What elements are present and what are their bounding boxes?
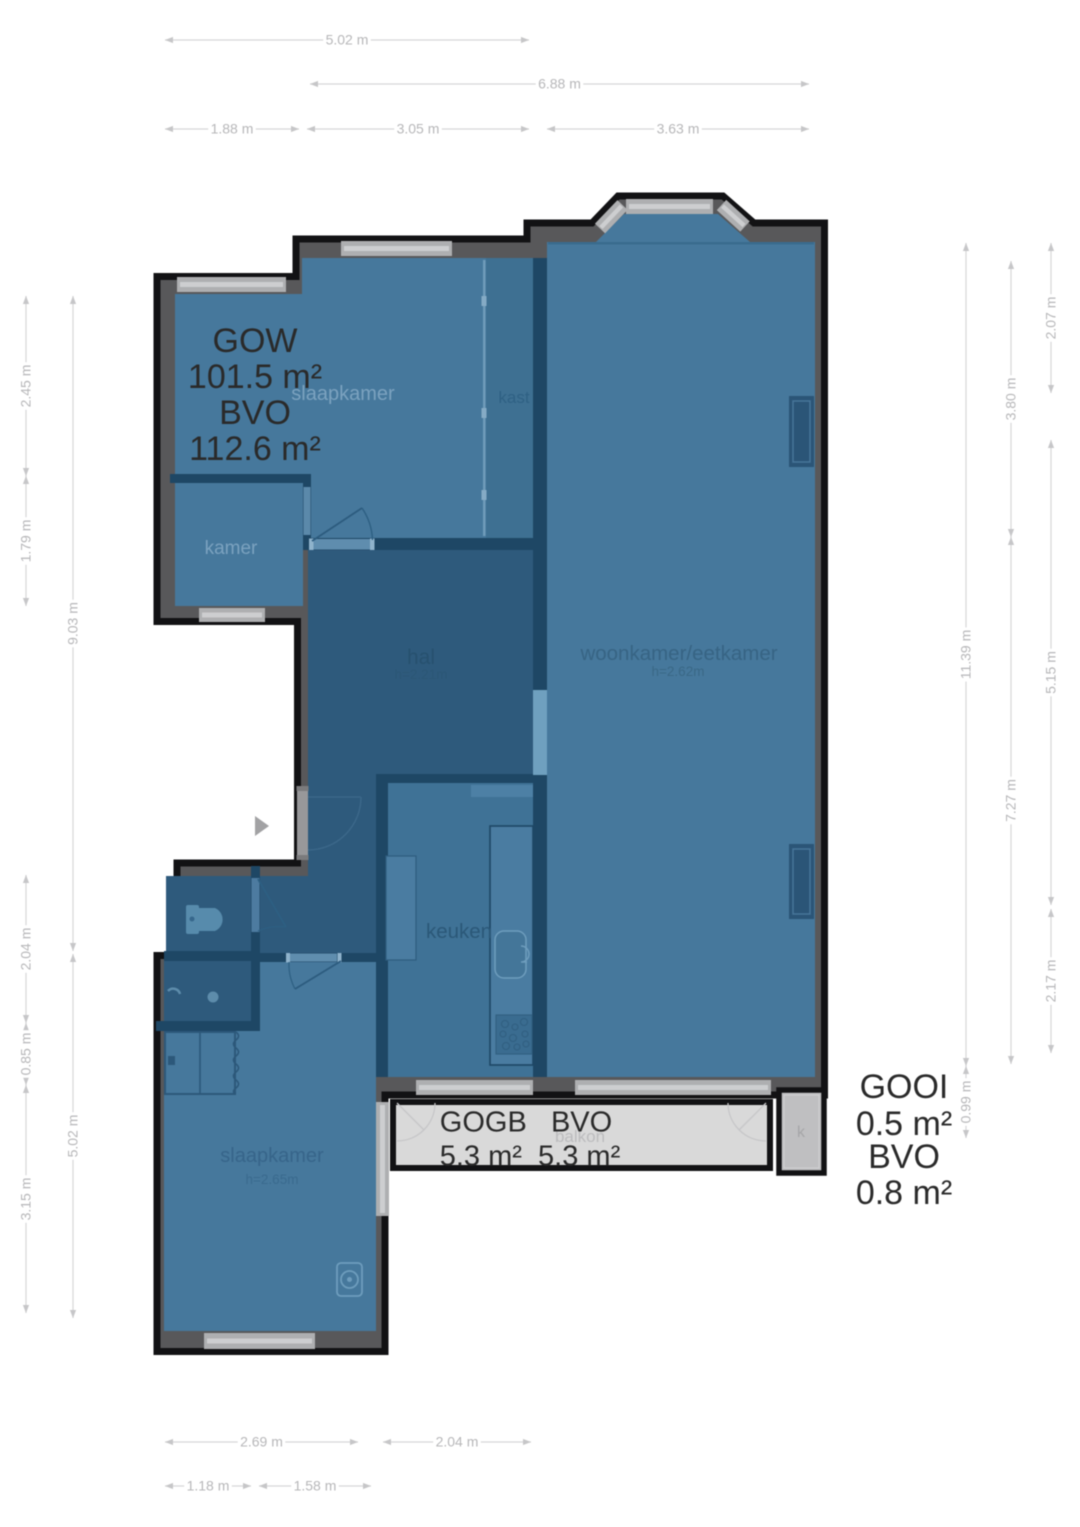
svg-text:11.39 m: 11.39 m — [958, 630, 974, 680]
svg-text:112.6 m²: 112.6 m² — [189, 430, 321, 468]
svg-text:2.07 m: 2.07 m — [1043, 297, 1059, 340]
svg-text:1.88 m: 1.88 m — [211, 121, 254, 137]
svg-text:7.27 m: 7.27 m — [1003, 779, 1019, 822]
svg-text:BVO: BVO — [868, 1138, 940, 1176]
svg-text:2.04 m: 2.04 m — [436, 1434, 479, 1450]
svg-text:0.85 m: 0.85 m — [18, 1033, 34, 1076]
svg-text:kamer: kamer — [205, 538, 258, 559]
svg-text:kast: kast — [498, 388, 529, 407]
svg-text:GOW: GOW — [213, 322, 298, 360]
svg-text:101.5 m²: 101.5 m² — [188, 358, 322, 396]
svg-text:hal: hal — [407, 646, 435, 669]
svg-text:h=2.65m: h=2.65m — [246, 1172, 299, 1187]
svg-text:3.63 m: 3.63 m — [657, 121, 700, 137]
svg-text:3.80 m: 3.80 m — [1003, 378, 1019, 421]
svg-text:h=2.62m: h=2.62m — [652, 664, 705, 679]
svg-text:1.18 m: 1.18 m — [187, 1478, 230, 1494]
svg-text:woonkamer/eetkamer: woonkamer/eetkamer — [579, 642, 777, 665]
svg-text:3.15 m: 3.15 m — [18, 1178, 34, 1221]
svg-text:2.45 m: 2.45 m — [18, 365, 34, 408]
svg-text:2.17 m: 2.17 m — [1043, 960, 1059, 1003]
svg-text:6.88 m: 6.88 m — [538, 76, 581, 92]
svg-text:GOOI: GOOI — [860, 1068, 949, 1106]
svg-text:BVO: BVO — [219, 394, 291, 432]
svg-text:keuken: keuken — [426, 920, 492, 943]
svg-text:5.02 m: 5.02 m — [326, 32, 369, 48]
svg-text:2.69 m: 2.69 m — [240, 1434, 283, 1450]
svg-text:0.99 m: 0.99 m — [958, 1081, 974, 1124]
svg-text:9.03 m: 9.03 m — [65, 602, 81, 645]
svg-text:h=2.21m: h=2.21m — [395, 667, 448, 682]
svg-text:1.79 m: 1.79 m — [18, 520, 34, 563]
svg-text:3.05 m: 3.05 m — [397, 121, 440, 137]
svg-text:slaapkamer: slaapkamer — [220, 1145, 324, 1167]
svg-text:k: k — [797, 1124, 806, 1141]
svg-text:GOGB BVO: GOGB BVO — [440, 1107, 612, 1139]
svg-text:5.3 m² 5.3 m²: 5.3 m² 5.3 m² — [440, 1141, 621, 1173]
svg-text:5.02 m: 5.02 m — [65, 1115, 81, 1158]
svg-text:0.8 m²: 0.8 m² — [856, 1174, 952, 1212]
svg-text:1.58 m: 1.58 m — [294, 1478, 337, 1494]
svg-text:5.15 m: 5.15 m — [1043, 651, 1059, 694]
svg-text:2.04 m: 2.04 m — [18, 928, 34, 971]
